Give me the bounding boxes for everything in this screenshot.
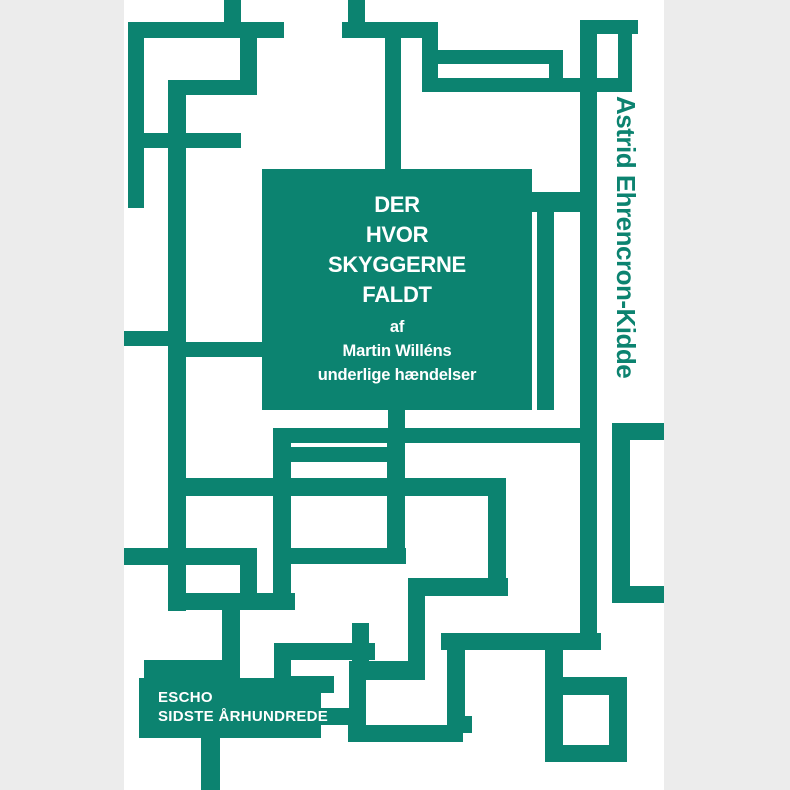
maze-segment: [124, 548, 240, 565]
author-name: Astrid Ehrencron-Kidde: [603, 96, 648, 408]
maze-segment: [201, 738, 220, 790]
maze-segment: [144, 660, 240, 678]
maze-segment: [447, 716, 472, 733]
maze-segment: [537, 212, 554, 410]
subtitle-line: Martin Willéns: [262, 339, 532, 363]
maze-segment: [618, 34, 632, 78]
maze-segment: [291, 447, 387, 462]
maze-segment: [422, 78, 632, 92]
subtitle-line: underlige hændelser: [262, 363, 532, 387]
maze-segment: [352, 623, 369, 665]
title-line: SKYGGERNE: [262, 250, 532, 280]
maze-segment: [342, 22, 423, 38]
maze-segment: [612, 586, 664, 603]
maze-segment: [580, 20, 597, 650]
maze-segment: [612, 423, 630, 603]
maze-segment: [168, 342, 262, 357]
title-line: HVOR: [262, 220, 532, 250]
publisher-series: SIDSTE ÅRHUNDREDE: [158, 708, 321, 727]
title-box: DER HVOR SKYGGERNE FALDT af Martin Willé…: [262, 169, 532, 410]
maze-segment: [348, 0, 365, 22]
maze-segment: [128, 22, 144, 208]
publisher-box: ESCHO SIDSTE ÅRHUNDREDE: [139, 678, 321, 738]
maze-segment: [273, 428, 597, 443]
maze-segment: [273, 428, 291, 610]
maze-segment: [387, 443, 405, 563]
maze-segment: [423, 50, 563, 64]
maze-segment: [388, 410, 405, 430]
maze-segment: [291, 548, 406, 564]
maze-segment: [441, 633, 601, 650]
maze-segment: [532, 192, 597, 212]
subtitle-line: af: [262, 315, 532, 339]
maze-segment: [385, 38, 401, 172]
maze-segment: [186, 478, 506, 496]
maze-segment: [168, 593, 295, 610]
maze-segment: [348, 725, 463, 742]
publisher-name: ESCHO: [158, 689, 321, 708]
maze-segment: [128, 22, 284, 38]
maze-segment: [545, 677, 627, 695]
maze-segment: [366, 661, 423, 680]
title-line: FALDT: [262, 280, 532, 310]
product-image: DER HVOR SKYGGERNE FALDT af Martin Willé…: [0, 0, 790, 790]
book-subtitle: af Martin Willéns underlige hændelser: [262, 315, 532, 387]
book-title: DER HVOR SKYGGERNE FALDT: [262, 190, 532, 310]
title-line: DER: [262, 190, 532, 220]
maze-segment: [488, 496, 506, 592]
maze-segment: [222, 610, 240, 665]
